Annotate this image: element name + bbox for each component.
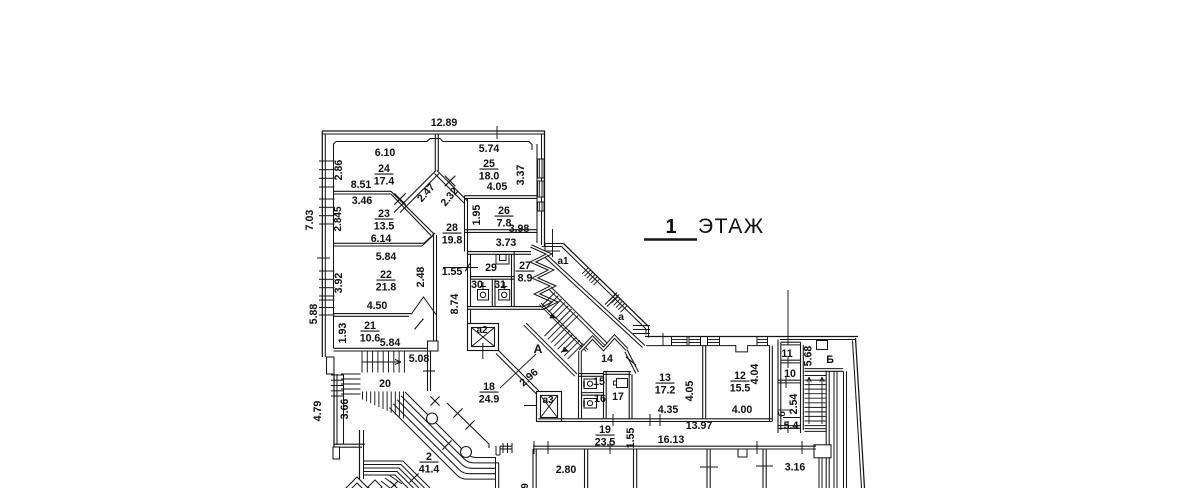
svg-text:16: 16 <box>594 393 606 405</box>
svg-text:13.5: 13.5 <box>374 221 395 233</box>
svg-text:3.73: 3.73 <box>496 237 517 249</box>
svg-text:6.10: 6.10 <box>375 147 396 159</box>
svg-text:ЭТАЖ: ЭТАЖ <box>698 215 765 238</box>
svg-text:23.5: 23.5 <box>595 437 616 449</box>
svg-text:28: 28 <box>446 222 458 234</box>
svg-text:17.2: 17.2 <box>655 385 676 397</box>
svg-text:8.51: 8.51 <box>351 179 372 191</box>
svg-text:15: 15 <box>593 376 605 388</box>
svg-text:17.4: 17.4 <box>374 176 395 188</box>
svg-text:3.16: 3.16 <box>785 462 806 474</box>
svg-text:б: б <box>777 411 787 417</box>
svg-text:16.13: 16.13 <box>658 434 685 446</box>
svg-text:1: 1 <box>665 216 676 238</box>
svg-text:а3: а3 <box>542 395 554 406</box>
svg-text:22: 22 <box>380 269 392 281</box>
svg-text:13.97: 13.97 <box>686 420 713 432</box>
svg-text:12.89: 12.89 <box>431 117 458 129</box>
svg-text:а: а <box>618 311 624 323</box>
svg-text:2.54: 2.54 <box>788 394 800 415</box>
svg-text:26: 26 <box>498 205 510 217</box>
svg-text:10: 10 <box>784 368 796 380</box>
svg-text:14: 14 <box>601 353 613 365</box>
svg-text:4.00: 4.00 <box>732 404 753 416</box>
svg-text:8.74: 8.74 <box>449 294 461 315</box>
svg-text:18: 18 <box>483 381 495 393</box>
svg-text:1.93: 1.93 <box>337 323 349 344</box>
svg-text:6.14: 6.14 <box>371 233 392 245</box>
svg-text:3.92: 3.92 <box>333 273 345 294</box>
svg-text:13: 13 <box>659 372 671 384</box>
svg-text:15.5: 15.5 <box>730 383 751 395</box>
svg-text:3.66: 3.66 <box>339 399 351 420</box>
svg-text:5.84: 5.84 <box>380 337 401 349</box>
svg-text:3.37: 3.37 <box>515 165 527 186</box>
svg-text:4.04: 4.04 <box>749 364 761 385</box>
svg-text:2.48: 2.48 <box>415 267 427 288</box>
svg-text:11: 11 <box>781 348 792 360</box>
svg-text:19.8: 19.8 <box>442 235 463 247</box>
svg-text:29: 29 <box>485 262 497 274</box>
svg-text:а2: а2 <box>476 325 488 336</box>
svg-text:5.4: 5.4 <box>784 420 799 432</box>
svg-text:24.9: 24.9 <box>479 394 500 406</box>
svg-text:3.46: 3.46 <box>352 195 373 207</box>
svg-text:21.8: 21.8 <box>376 282 397 294</box>
svg-text:25: 25 <box>483 158 495 170</box>
svg-text:4.50: 4.50 <box>367 300 388 312</box>
svg-text:12: 12 <box>734 370 746 382</box>
svg-text:5.74: 5.74 <box>479 143 500 155</box>
svg-text:5.68: 5.68 <box>803 346 815 367</box>
svg-text:2.80: 2.80 <box>556 464 577 476</box>
svg-text:4.79: 4.79 <box>312 401 324 422</box>
svg-text:1.95: 1.95 <box>471 205 483 226</box>
svg-text:27: 27 <box>519 260 531 272</box>
svg-text:1.55: 1.55 <box>625 428 637 449</box>
svg-text:а1: а1 <box>557 256 569 267</box>
svg-text:41.4: 41.4 <box>419 464 440 476</box>
svg-text:19: 19 <box>599 424 611 436</box>
svg-text:5.88: 5.88 <box>308 304 320 325</box>
svg-text:3.98: 3.98 <box>509 223 530 235</box>
svg-text:1.55: 1.55 <box>442 266 463 278</box>
svg-text:9: 9 <box>520 483 531 488</box>
svg-text:5.08: 5.08 <box>409 353 430 365</box>
svg-text:31: 31 <box>494 279 506 291</box>
svg-text:4.05: 4.05 <box>487 181 508 193</box>
svg-text:30: 30 <box>471 279 483 291</box>
svg-text:4.35: 4.35 <box>658 404 679 416</box>
svg-text:А: А <box>534 342 543 356</box>
svg-text:10.6: 10.6 <box>360 333 381 345</box>
svg-text:21: 21 <box>364 320 376 332</box>
svg-text:4.05: 4.05 <box>684 381 696 402</box>
svg-text:17: 17 <box>612 391 624 403</box>
svg-text:7.03: 7.03 <box>304 210 316 231</box>
svg-text:2: 2 <box>426 451 432 463</box>
svg-text:8.9: 8.9 <box>518 273 533 285</box>
svg-text:Б: Б <box>826 354 834 366</box>
svg-text:23: 23 <box>378 208 390 220</box>
svg-text:20: 20 <box>379 378 391 390</box>
svg-text:2.845: 2.845 <box>333 206 344 231</box>
svg-text:2.86: 2.86 <box>333 160 345 181</box>
svg-text:5.84: 5.84 <box>376 251 397 263</box>
svg-text:24: 24 <box>378 163 390 175</box>
